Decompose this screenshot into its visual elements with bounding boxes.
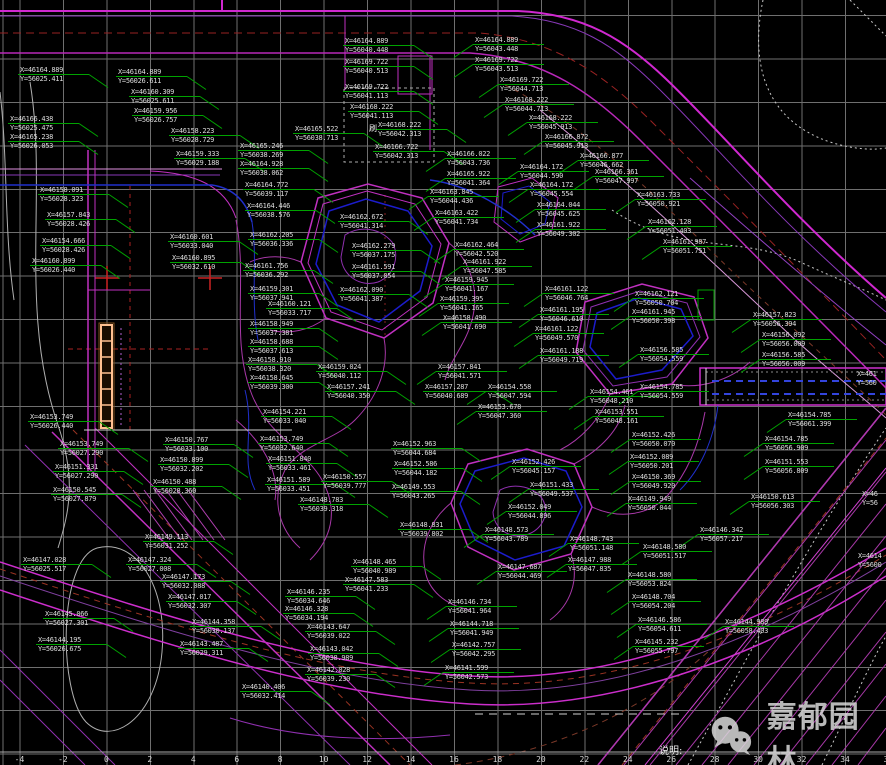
coordinate-label: X=46162.672Y=56041.314 [340,213,383,231]
coordinate-label: X=46143.042Y=56038.989 [310,645,353,663]
x-coordinate: X=46148.783 [300,496,343,504]
x-coordinate: X=46169.722 [345,58,388,66]
coordinate-label: X=46164.928Y=56038.062 [240,160,283,178]
coordinate-label: X=46147.324Y=56027.008 [128,556,171,574]
y-coordinate: Y=56027.290 [60,449,103,457]
y-coordinate: Y=56026.053 [10,142,53,150]
y-coordinate: Y=56028.426 [47,220,90,228]
y-coordinate: Y=56041.364 [447,179,490,187]
x-coordinate: X=46147.017 [168,593,211,601]
x-coordinate: X=46158.490 [443,314,486,322]
coordinate-label: X=46152.963Y=56044.684 [393,440,436,458]
x-coordinate: X=46153.551 [595,408,638,416]
coordinate-label: X=46147.173Y=56032.088 [162,573,205,591]
coordinate-label: X=46150.369Y=56049.920 [632,473,675,491]
y-coordinate: Y=56042.313 [378,130,421,138]
coordinate-label: X=46159.333Y=56029.188 [176,150,219,168]
coordinate-label: X=46143.647Y=56039.022 [307,623,350,641]
x-coordinate: X=46150.369 [632,473,675,481]
coordinate-label: X=46150.545Y=56027.879 [53,486,96,504]
coordinate-label: X=46169.722Y=56040.513 [345,58,388,76]
ruler-tick-label: 4 [191,755,196,764]
x-coordinate: X=46162.672 [340,213,383,221]
y-coordinate: Y=56047.360 [478,412,521,420]
coordinate-label: X=46151.589Y=56033.451 [267,476,310,494]
x-coordinate: X=46148.743 [570,535,613,543]
coordinate-label: X=46148.743Y=56051.148 [570,535,613,553]
y-coordinate: Y=56044.896 [508,512,551,520]
y-coordinate: Y=56050.398 [632,317,675,325]
y-coordinate: Y=56044.182 [394,469,437,477]
x-coordinate: X=46156.585 [640,346,683,354]
x-coordinate: X=46163.733 [637,191,680,199]
x-coordinate: X=46163.845 [430,188,473,196]
y-coordinate: Y=56045.913 [529,123,572,131]
x-coordinate: X=46147.988 [568,556,611,564]
y-coordinate: Y=56050.921 [637,200,680,208]
coordinate-label: X=46150.767Y=56033.100 [165,436,208,454]
coordinate-label: X=46150.557Y=56039.777 [323,473,366,491]
y-coordinate: Y=56028.426 [42,246,85,254]
coordinate-label: X=46164.889Y=56043.448 [475,36,518,54]
coordinate-label: X=46159.024Y=56040.112 [318,363,361,381]
y-coordinate: Y=56026.611 [118,77,161,85]
y-coordinate: Y=56040.989 [353,567,396,575]
x-coordinate: X=46160.309 [131,88,174,96]
coordinate-label: X=46153.749Y=56027.290 [60,440,103,458]
coordinate-label: X=46145.066Y=56027.301 [45,610,88,628]
y-coordinate: Y=56042.520 [455,250,498,258]
x-coordinate: X=46152.963 [393,440,436,448]
x-coordinate: X=46148.573 [485,526,528,534]
coordinate-label: X=46158.910Y=56038.320 [248,356,291,374]
x-coordinate: X=46162.090 [340,286,383,294]
x-coordinate: X=46156.092 [762,331,805,339]
coordinate-label: X=46164.172Y=56044.590 [520,163,563,181]
x-coordinate: X=46144.358 [192,618,235,626]
x-coordinate: X=46161.922 [537,221,580,229]
coordinate-label: X=46162.279Y=56037.175 [352,242,395,260]
y-coordinate: Y=56026.675 [38,645,81,653]
x-coordinate: X=46149.949 [628,495,671,503]
x-coordinate: X=46164.889 [118,68,161,76]
coordinate-label: X=46143.487Y=56029.311 [180,640,223,658]
ruler-tick-label: 20 [536,755,546,764]
x-coordinate: X=46160.601 [170,233,213,241]
y-coordinate: Y=56041.314 [340,222,383,230]
y-coordinate: Y=56025.611 [131,97,174,105]
x-coordinate: X=46157.241 [327,383,370,391]
x-coordinate: X=46161.987 [663,238,706,246]
y-coordinate: Y=56037.175 [352,251,395,259]
coordinate-label: X=46141.599Y=56042.573 [445,664,488,682]
x-coordinate: X=46144.989 [725,618,768,626]
coordinate-label: X=46146.235Y=56034.646 [287,588,330,606]
x-coordinate: X=46159.956 [134,107,177,115]
x-coordinate: X=46159.945 [445,276,488,284]
x-coordinate: X=46166.438 [10,115,53,123]
coordinate-label: X=46161.122Y=56049.570 [535,325,578,343]
x-coordinate: X=46168.222 [378,121,421,129]
coordinate-label: X=46169.722Y=56044.713 [500,76,543,94]
coordinate-label: X=46154.785Y=56054.559 [640,383,683,401]
x-coordinate: X=46150.545 [53,486,96,494]
coordinate-label: X=46154.785Y=56056.909 [765,435,808,453]
coordinate-label: X=46150.899Y=56032.202 [160,456,203,474]
y-coordinate: Y=56041.690 [443,323,486,331]
coordinate-label: X=46156.585Y=56056.009 [762,351,805,369]
coordinate-label: X=46146.342Y=56057.217 [700,526,743,544]
coordinate-label: X=46146.734Y=56041.964 [448,598,491,616]
x-coordinate: X=46159.333 [176,150,219,158]
x-coordinate: X=46166.872 [545,133,588,141]
y-coordinate: Y=56045.554 [530,190,573,198]
y-coordinate: Y=56044.436 [430,197,473,205]
x-coordinate: X=46164.446 [247,202,290,210]
y-coordinate: Y=56054.611 [638,625,681,633]
y-coordinate: Y=56039.022 [307,632,350,640]
x-coordinate: X=46156.585 [762,351,805,359]
wechat-icon [704,712,760,760]
x-coordinate: X=46157.287 [425,383,468,391]
x-coordinate: X=46150.767 [165,436,208,444]
x-coordinate: X=46158.910 [248,356,291,364]
ruler-tick-label: 18 [493,755,503,764]
x-coordinate: X=46143.487 [180,640,223,648]
coordinate-label: X=46152.049Y=56044.896 [508,503,551,521]
coordinate-label: X=46151.553Y=56056.809 [765,458,808,476]
coordinate-label: X=46168.222Y=56041.113 [350,103,393,121]
coordinate-label: X=46159.945Y=56041.167 [445,276,488,294]
coordinate-label: X=46158.223Y=56028.729 [171,127,214,145]
y-coordinate: Y=56029.188 [176,159,219,167]
y-coordinate: Y=56046.764 [545,294,588,302]
y-coordinate: Y=56027.008 [128,565,171,573]
x-coordinate: X=46158.688 [250,338,293,346]
coordinate-label: X=46158.645Y=56039.300 [250,374,293,392]
coordinate-label: X=46148.465Y=56040.989 [353,558,396,576]
y-coordinate: Y=56051.403 [648,227,691,235]
ruler-tick-label: -2 [58,755,68,764]
y-coordinate: Y=56047.997 [595,177,638,185]
coordinate-label: X=46169.722Y=56041.113 [345,83,388,101]
coordinate-label: X=46162.464Y=56042.520 [455,241,498,259]
x-coordinate: X=46154.461 [590,388,633,396]
x-coordinate: X=46169.722 [500,76,543,84]
y-coordinate: Y=56037.381 [250,329,293,337]
x-coordinate: X=46161.188 [540,347,583,355]
y-coordinate: Y=56043.513 [475,65,518,73]
x-coordinate: X=46149.553 [392,483,435,491]
y-coordinate: Y=56037.054 [352,272,395,280]
y-coordinate: Y=56058.403 [725,627,768,635]
coordinate-label: X=46168.222Y=56045.913 [529,114,572,132]
coordinate-label: X=46153.678Y=56047.360 [478,403,521,421]
x-coordinate: X=46154.558 [488,383,531,391]
x-coordinate: X=46153.749 [60,440,103,448]
coordinate-label: X=46154.558Y=56047.594 [488,383,531,401]
y-coordinate: Y=56038.320 [248,365,291,373]
y-coordinate: Y=56027.301 [45,619,88,627]
coordinate-label: X=46158.949Y=56037.381 [250,320,293,338]
x-coordinate: X=46164.889 [20,66,63,74]
y-coordinate: Y=56061.399 [788,420,831,428]
y-coordinate: Y=56043.448 [475,45,518,53]
ruler-tick-label: 22 [580,755,590,764]
coordinate-label: X=46169.722Y=56043.513 [475,56,518,74]
y-coordinate: Y=56032.414 [242,692,285,700]
y-coordinate: Y=56041.964 [448,607,491,615]
coordinate-label: X=46Y=56 [862,490,878,508]
x-coordinate: X=46148.580 [628,571,671,579]
x-coordinate: X=46151.331 [55,463,98,471]
y-coordinate: Y=56032.640 [260,444,303,452]
coordinate-label: X=46166.438Y=56025.475 [10,115,53,133]
y-coordinate: Y=56030.137 [192,627,235,635]
x-coordinate: X=46145.232 [635,638,678,646]
x-coordinate: X=46154.785 [640,383,683,391]
coordinate-label: X=46161.195Y=56046.610 [540,306,583,324]
y-coordinate: Y=56041.233 [345,585,388,593]
coordinate-label: X=46154.221Y=56033.040 [263,408,306,426]
coordinate-label: X=46156.092Y=56056.009 [762,331,805,349]
y-coordinate: Y=56028.323 [40,195,83,203]
coordinate-label: X=46150.613Y=56056.303 [751,493,794,511]
y-coordinate: Y=56051.517 [643,552,686,560]
x-coordinate: X=46149.113 [145,533,188,541]
x-coordinate: X=46152.426 [512,458,555,466]
x-coordinate: X=46143.042 [310,645,353,653]
y-coordinate: Y=56033.451 [267,485,310,493]
coordinate-label: X=46158.091Y=56028.323 [40,186,83,204]
x-coordinate: X=46161.922 [463,258,506,266]
coordinate-label: X=46142.028Y=56039.230 [307,666,350,684]
y-coordinate: Y=56050.044 [628,504,671,512]
coordinate-label: X=46147.988Y=56047.835 [568,556,611,574]
y-coordinate: Y=56054.559 [640,392,683,400]
x-coordinate: X=46146.235 [287,588,330,596]
y-coordinate: Y=56025.411 [20,75,63,83]
x-coordinate: X=46142.028 [307,666,350,674]
x-coordinate: X=46142.757 [452,641,495,649]
x-coordinate: X=46157.843 [47,211,90,219]
x-coordinate: X=46151.553 [765,458,808,466]
x-coordinate: X=46148.465 [353,558,396,566]
coordinate-label: X=46161.591Y=56037.054 [352,263,395,281]
y-coordinate: Y=56047.835 [568,565,611,573]
coordinate-label: X=46168.222Y=56042.313 [378,121,421,139]
y-coordinate: Y=56043.789 [485,535,528,543]
coordinate-label: X=46149.553Y=56043.265 [392,483,435,501]
y-coordinate: Y=56038.269 [240,151,283,159]
coordinate-label: X=46142.757Y=56042.295 [452,641,495,659]
y-coordinate: Y=56025.517 [23,565,66,573]
x-coordinate: X=46152.586 [394,460,437,468]
x-coordinate: X=46166.722 [375,143,418,151]
x-coordinate: X=46158.645 [250,374,293,382]
x-coordinate: X=46164.044 [537,201,580,209]
coordinate-label: X=46140.406Y=56032.414 [242,683,285,701]
y-coordinate: Y=56049.570 [535,334,578,342]
y-coordinate: Y=56026.757 [134,116,177,124]
coordinate-label: X=4614Y=5600 [858,552,882,570]
y-coordinate: Y=56041.387 [340,295,383,303]
x-coordinate: X=46146.586 [638,616,681,624]
coordinate-label: X=46145.232Y=56055.797 [635,638,678,656]
y-coordinate: Y=56045.157 [512,467,555,475]
coordinate-label: X=46160.895Y=56032.610 [172,254,215,272]
x-coordinate: X=46168.222 [350,103,393,111]
x-coordinate: X=46153.749 [260,435,303,443]
coordinate-label: X=46148.573Y=56043.789 [485,526,528,544]
x-coordinate: X=46153.749 [30,413,73,421]
coordinate-label: X=46166.361Y=56047.997 [595,168,638,186]
coordinate-label: X=46165.238Y=56026.053 [10,133,53,151]
x-coordinate: X=46162.279 [352,242,395,250]
y-coordinate: Y=56026.440 [30,422,73,430]
x-coordinate: X=46140.406 [242,683,285,691]
x-coordinate: X=46144.718 [450,620,493,628]
x-coordinate: X=46159.024 [318,363,361,371]
y-coordinate: Y=56029.311 [180,649,223,657]
x-coordinate: X=46148.831 [400,521,443,529]
coordinate-label: X=46158.490Y=56041.690 [443,314,486,332]
coordinate-label: X=46168.222Y=56044.713 [505,96,548,114]
cad-drawing-canvas: X=46164.889Y=56025.411X=46164.889Y=56026… [0,0,886,765]
x-coordinate: X=46164.172 [520,163,563,171]
y-coordinate: Y=56049.719 [540,356,583,364]
y-coordinate: Y=56049.537 [530,490,573,498]
x-coordinate: X=46161.195 [540,306,583,314]
y-coordinate: Y=56033.040 [263,417,306,425]
y-coordinate: Y=56032.088 [162,582,205,590]
y-coordinate: Y=56041.113 [350,112,393,120]
coordinate-label: X=46147.017Y=56032.307 [168,593,211,611]
y-coordinate: Y=56040.513 [345,67,388,75]
x-coordinate: X=46154.666 [42,237,85,245]
coordinate-label: X=46154.666Y=56028.426 [42,237,85,255]
y-coordinate: Y=56040.112 [318,372,361,380]
coordinate-label: X=46146.328Y=56034.194 [285,605,328,623]
coordinate-label: X=46148.783Y=56039.318 [300,496,343,514]
x-coordinate: X=46154.785 [788,411,831,419]
coordinate-label: X=46160.899Y=56026.440 [32,257,75,275]
coordinate-label: X=46162.128Y=56051.403 [648,218,691,236]
coordinate-label: X=46159.956Y=56026.757 [134,107,177,125]
x-coordinate: X=46152.089 [630,453,673,461]
coordinate-label: X=46164.889Y=56025.411 [20,66,63,84]
x-coordinate: X=46169.722 [475,56,518,64]
coordinate-label: X=46144.195Y=56026.675 [38,636,81,654]
coordinate-label: X=46154.461Y=56048.210 [590,388,633,406]
x-coordinate: X=46147.687 [498,563,541,571]
x-coordinate: X=46163.422 [435,209,478,217]
coordinate-label: X=46161.922Y=56049.302 [537,221,580,239]
y-coordinate: Y=56040.448 [345,46,388,54]
x-coordinate: X=46148.580 [643,543,686,551]
x-coordinate: X=46150.488 [153,478,196,486]
y-coordinate: Y=56050.201 [630,462,673,470]
y-coordinate: Y=56042.295 [452,650,495,658]
y-coordinate: Y=56049.302 [537,230,580,238]
y-coordinate: Y=56056.394 [753,320,796,328]
x-coordinate: X=46166.877 [580,152,623,160]
watermark-text: 嘉郁园林 [767,692,886,765]
coordinate-label: X=46148.831Y=56039.802 [400,521,443,539]
coordinate-label: X=46153.749Y=56032.640 [260,435,303,453]
y-coordinate: Y=56054.204 [632,602,675,610]
y-coordinate: Y=56033.100 [165,445,208,453]
coordinate-label: X=46160.601Y=56033.040 [170,233,213,251]
y-coordinate: Y=56025.475 [10,124,53,132]
coordinate-label: X=46159.395Y=56041.165 [440,295,483,313]
ruler-tick-label: 0 [104,755,109,764]
y-coordinate: Y=56040.689 [425,392,468,400]
coordinate-label: X=46158.688Y=56037.613 [250,338,293,356]
x-coordinate: X=46161.756 [245,262,288,270]
coordinate-label: X=46160.121Y=56033.717 [268,300,311,318]
y-coordinate: Y=56053.824 [628,580,671,588]
coordinate-label: X=46165.522Y=56038.713 [295,125,338,143]
x-coordinate: X=46162.205 [250,231,293,239]
y-coordinate: Y=56039.300 [250,383,293,391]
x-coordinate: X=46146.734 [448,598,491,606]
ruler-tick-label: 24 [623,755,633,764]
coordinate-label: X=46166.872Y=56045.913 [545,133,588,151]
x-coordinate: X=46161.122 [535,325,578,333]
coordinate-label: X=46160.309Y=56025.611 [131,88,174,106]
x-coordinate: X=46169.722 [345,83,388,91]
y-coordinate: Y=56044.713 [500,85,543,93]
ladder-detail [99,323,114,430]
coordinate-label: X=46165.246Y=56038.269 [240,142,283,160]
coordinate-label: X=46164.889Y=56026.611 [118,68,161,86]
y-coordinate: Y=56041.734 [435,218,478,226]
x-coordinate: X=46160.895 [172,254,215,262]
y-coordinate: Y=56028.729 [171,136,214,144]
coordinate-label: X=46164.889Y=56040.448 [345,37,388,55]
ruler-tick-label: 12 [362,755,372,764]
y-coordinate: Y=56039.318 [300,505,343,513]
y-coordinate: Y=56027.290 [55,472,98,480]
y-coordinate: Y=56026.440 [32,266,75,274]
y-coordinate: Y=56055.797 [635,647,678,655]
coordinate-label: X=46156.585Y=56054.559 [640,346,683,364]
coordinate-label: X=46164.172Y=56045.554 [530,181,573,199]
coordinate-label: X=46147.583Y=56041.233 [345,576,388,594]
y-coordinate: Y=56036.292 [245,271,288,279]
x-coordinate: X=46164.889 [345,37,388,45]
y-coordinate: Y=56044.469 [498,572,541,580]
x-coordinate: X=46150.557 [323,473,366,481]
y-coordinate: Y=56050.704 [635,299,678,307]
coordinate-label: X=46148.580Y=56051.517 [643,543,686,561]
y-coordinate: Y=56038.576 [247,211,290,219]
x-coordinate: X=46153.678 [478,403,521,411]
coordinate-label: X=46147.687Y=56044.469 [498,563,541,581]
x-coordinate: X=46146.328 [285,605,328,613]
ruler-tick-label: 14 [406,755,416,764]
y-coordinate: Y=56036.336 [250,240,293,248]
coordinate-label: X=46152.426Y=56045.157 [512,458,555,476]
y-coordinate: Y=56048.210 [590,397,633,405]
x-coordinate: X=46158.223 [171,127,214,135]
coordinate-label: X=46157.841Y=56041.571 [438,363,481,381]
ruler-tick-label: -4 [15,755,25,764]
x-coordinate: X=46157.841 [438,363,481,371]
y-coordinate: Y=56041.949 [450,629,493,637]
ruler-tick-label: 6 [234,755,239,764]
